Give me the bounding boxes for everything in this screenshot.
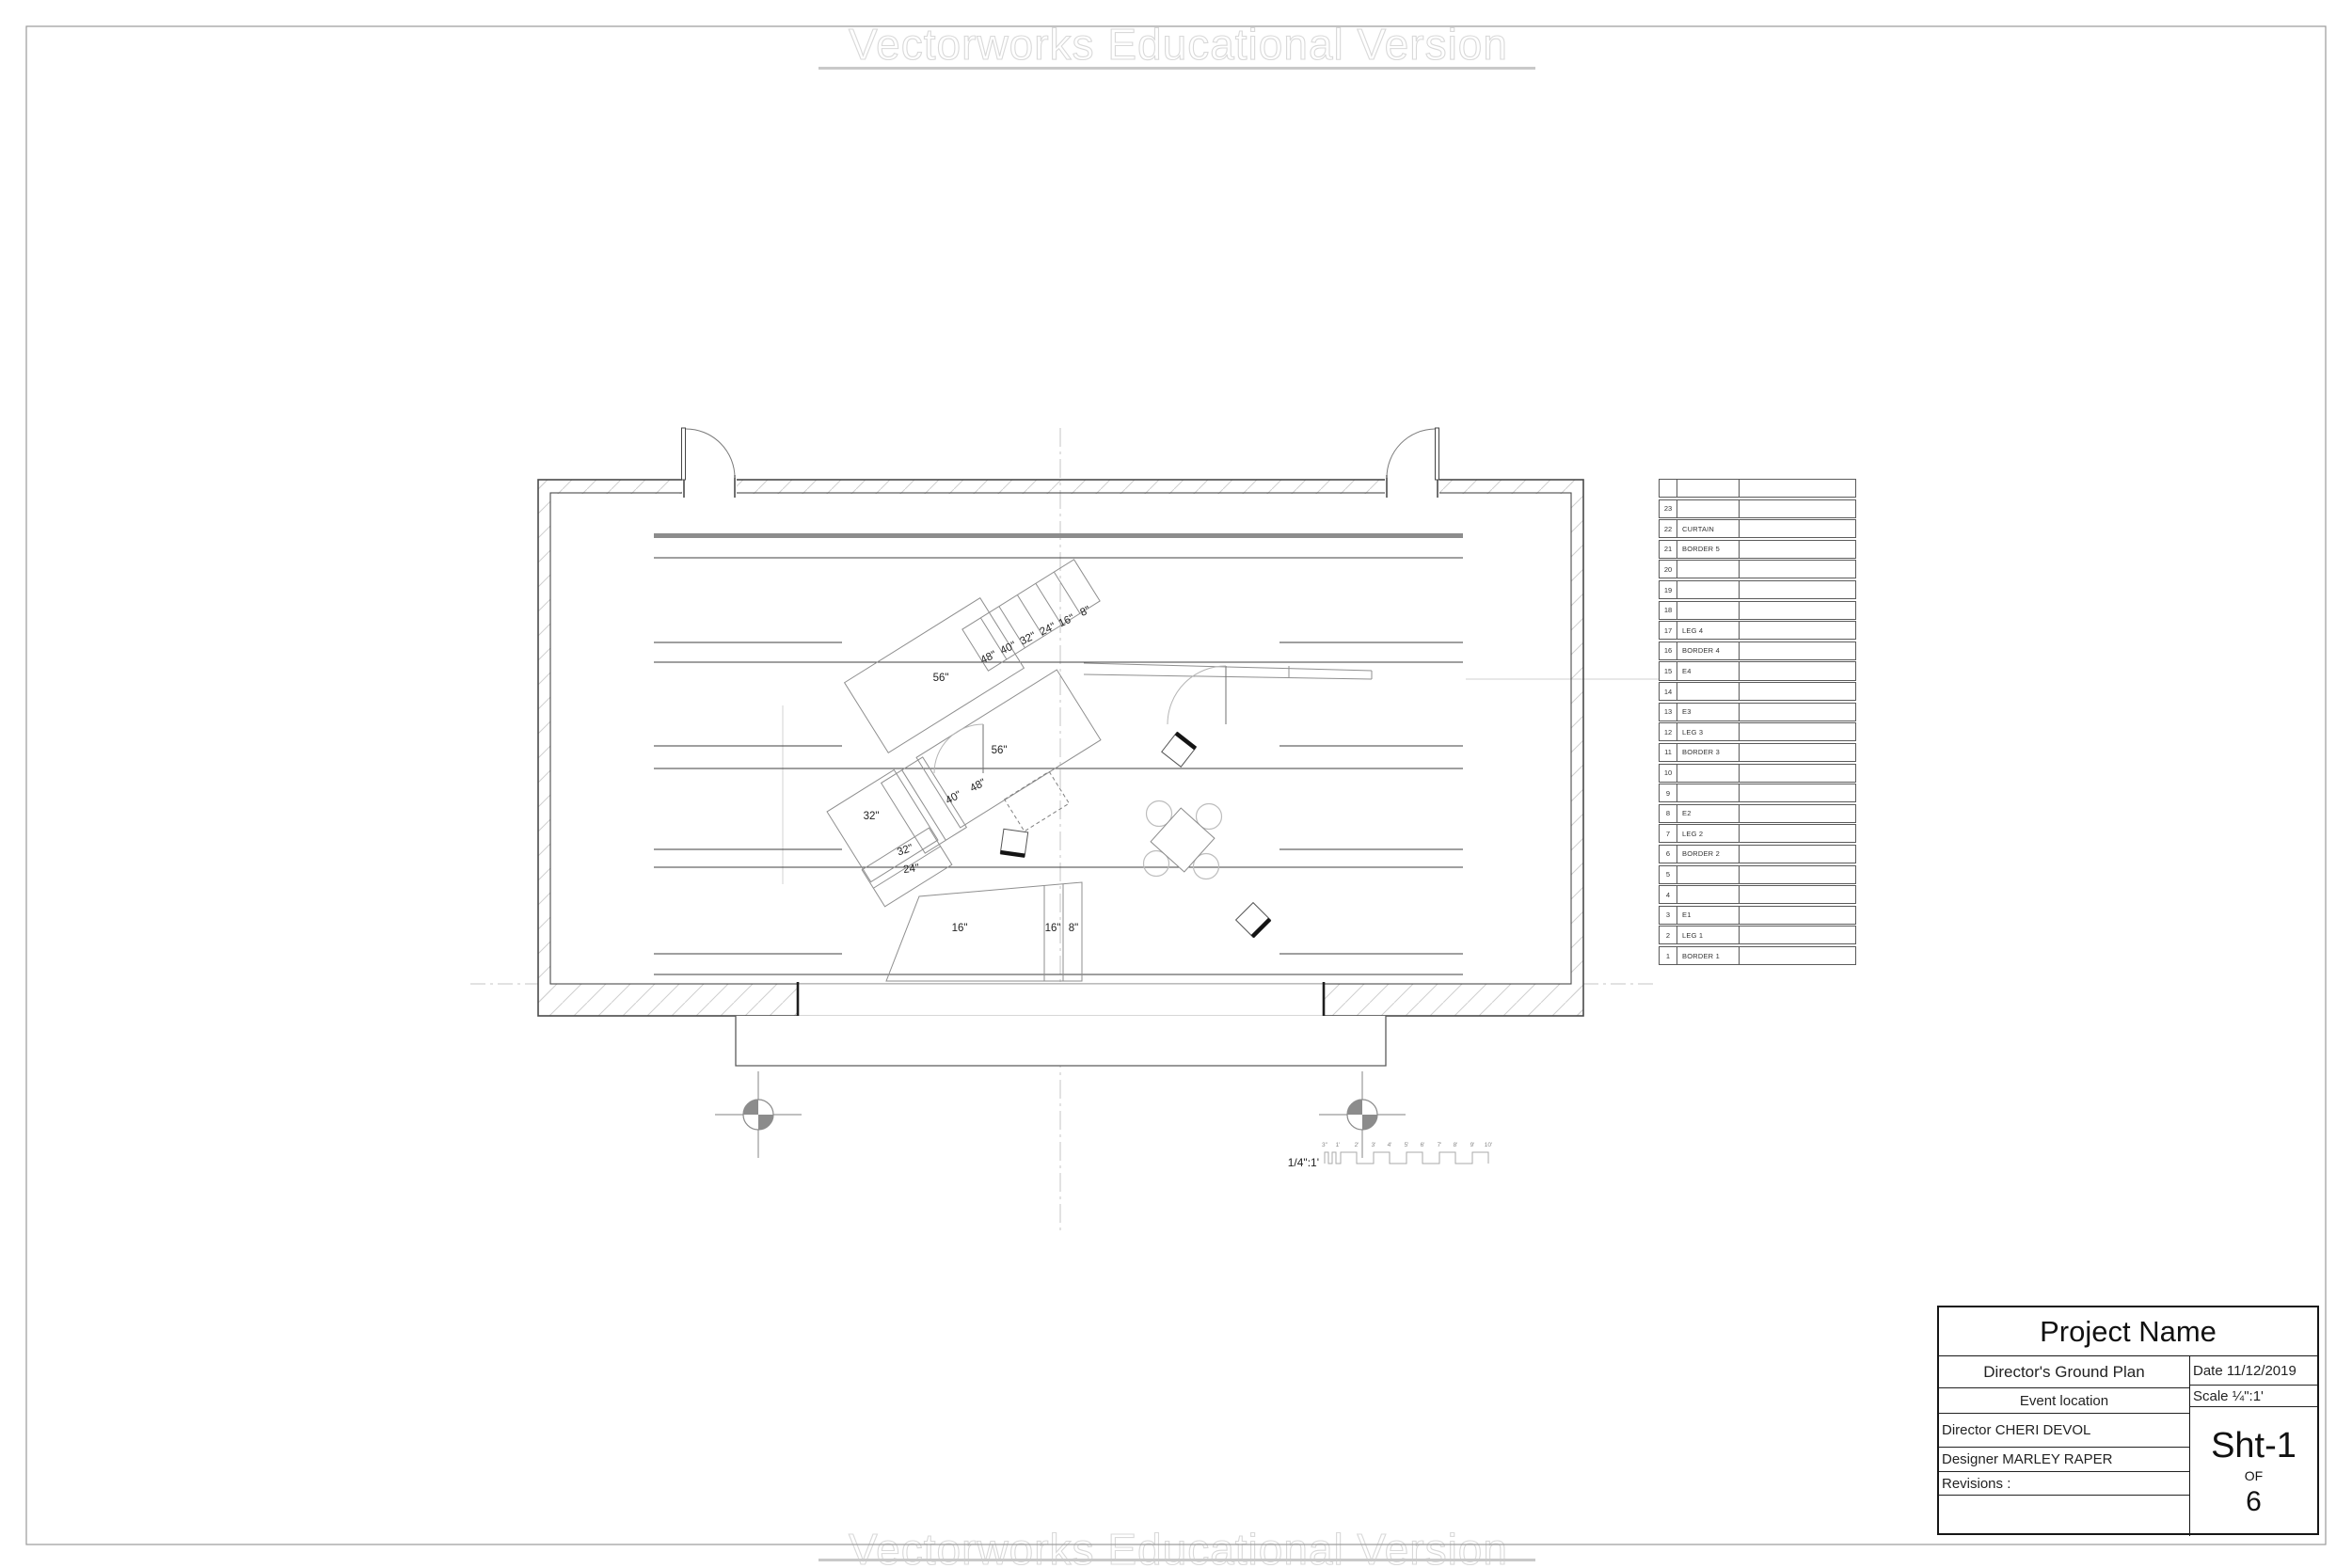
lineset-label — [1677, 765, 1740, 782]
dining-table — [1151, 808, 1215, 872]
door-left-opening — [682, 477, 737, 496]
scale-bar-tick-label: 9' — [1470, 1142, 1475, 1148]
platform-dimension-label: 32" — [864, 811, 880, 822]
lineset-row: 13E3 — [1659, 703, 1856, 721]
lineset-row: 20 — [1659, 560, 1856, 578]
scale-label: Scale — [2193, 1388, 2229, 1404]
lineset-row: 21BORDER 5 — [1659, 540, 1856, 559]
lineset-row: 11BORDER 3 — [1659, 743, 1856, 762]
scale-bar-tick-label: 3' — [1372, 1142, 1376, 1148]
date-row: Date 11/12/2019 — [2190, 1356, 2317, 1386]
wall-bottom-right-hatch — [1324, 984, 1583, 1016]
revisions-row: Revisions : — [1939, 1472, 2189, 1496]
scale-value: ¼":1' — [2233, 1388, 2264, 1404]
platform-dimension-label: 40" — [944, 789, 963, 807]
platform-dimension-label: 56" — [992, 745, 1008, 756]
lineset-number: 20 — [1660, 561, 1677, 578]
stair-run-mid — [882, 757, 967, 853]
proscenium-opening — [798, 984, 1324, 1016]
director-label: Director — [1942, 1422, 1992, 1438]
drawing-sheet: Vectorworks Educational Version Vectorwo… — [0, 0, 2352, 1568]
lineset-number: 9 — [1660, 784, 1677, 801]
lineset-note — [1740, 723, 1855, 740]
lineset-note — [1740, 602, 1855, 619]
scale-bar-tick-label: 5' — [1405, 1142, 1409, 1148]
prop-table-dashed — [1005, 771, 1070, 832]
lineset-row: 5 — [1659, 865, 1856, 884]
lineset-number: 22 — [1660, 520, 1677, 537]
scale-bar-tick-label: 1' — [1336, 1142, 1341, 1148]
lineset-label — [1677, 866, 1740, 883]
scale-bar-tick-label: 2' — [1355, 1142, 1359, 1148]
lineset-number: 17 — [1660, 622, 1677, 639]
title-block: Project Name Director's Ground Plan Even… — [1937, 1306, 2319, 1535]
platform-56b — [916, 670, 1101, 828]
door-left-swing-arc — [686, 429, 735, 478]
lineset-row: 9 — [1659, 784, 1856, 802]
lineset-number: 15 — [1660, 662, 1677, 679]
project-name: Project Name — [1939, 1307, 2317, 1356]
lineset-row: 6BORDER 2 — [1659, 845, 1856, 863]
scale-bar-tick-label: 7' — [1438, 1142, 1442, 1148]
lineset-number: 16 — [1660, 642, 1677, 659]
lineset-note — [1740, 683, 1855, 700]
lineset-number: 8 — [1660, 805, 1677, 822]
wall-right-hatch — [1571, 480, 1583, 1016]
lineset-row: 15E4 — [1659, 661, 1856, 680]
chair — [1000, 829, 1027, 856]
lineset-label: BORDER 3 — [1677, 744, 1740, 761]
lineset-note — [1740, 642, 1855, 659]
lineset-number: 7 — [1660, 825, 1677, 842]
platform-unit — [827, 560, 1372, 981]
lineset-row: 22CURTAIN — [1659, 519, 1856, 538]
lineset-number: 1 — [1660, 947, 1677, 964]
platform-32 — [827, 769, 938, 881]
platform-dimension-label: 24" — [1039, 621, 1057, 638]
designer-label: Designer — [1942, 1451, 1998, 1467]
facia-top-line — [1084, 663, 1372, 671]
lineset-note — [1740, 541, 1855, 558]
designer-row: Designer MARLEY RAPER — [1939, 1448, 2189, 1472]
lineset-row: 4 — [1659, 885, 1856, 904]
scale-bar-tick-label: 4' — [1388, 1142, 1392, 1148]
lineset-note — [1740, 561, 1855, 578]
lineset-note — [1740, 480, 1855, 497]
lineset-label: LEG 1 — [1677, 927, 1740, 943]
lineset-row: 23 — [1659, 499, 1856, 518]
scale-bar-label: 1/4":1' — [1288, 1156, 1319, 1169]
lineset-label: LEG 2 — [1677, 825, 1740, 842]
lineset-label — [1677, 581, 1740, 598]
lineset-label: E4 — [1677, 662, 1740, 679]
scale-bar-tick-label: 8' — [1454, 1142, 1458, 1148]
lineset-label: BORDER 4 — [1677, 642, 1740, 659]
lineset-row: 10 — [1659, 764, 1856, 783]
lineset-row: 14 — [1659, 682, 1856, 701]
scale-bar-ticks: 3"1'2'3'4'5'6'7'8'9'10' — [1322, 1142, 1492, 1148]
facia-bottom-line — [1084, 674, 1372, 679]
lineset-label: BORDER 2 — [1677, 846, 1740, 863]
sheet-number: Sht-1 — [2211, 1428, 2296, 1464]
chair — [1236, 903, 1271, 938]
scale-bar-tick-label: 3" — [1322, 1142, 1328, 1148]
lineset-number: 11 — [1660, 744, 1677, 761]
lineset-note — [1740, 622, 1855, 639]
door-right-opening — [1385, 477, 1439, 496]
scale-bar-tick-label: 6' — [1421, 1142, 1425, 1148]
sheet-of-label: OF — [2245, 1469, 2263, 1482]
lineset-number: 3 — [1660, 907, 1677, 924]
door-right-swing-arc — [1387, 429, 1435, 478]
lineset-number: 10 — [1660, 765, 1677, 782]
revisions-empty-row — [1939, 1496, 2189, 1536]
sheet-total: 6 — [2246, 1488, 2262, 1516]
lineset-note — [1740, 825, 1855, 842]
lineset-number — [1660, 480, 1677, 497]
lineset-label — [1677, 784, 1740, 801]
lineset-number: 14 — [1660, 683, 1677, 700]
lineset-number: 2 — [1660, 927, 1677, 943]
lineset-row: 16BORDER 4 — [1659, 641, 1856, 660]
lineset-row: 1BORDER 1 — [1659, 946, 1856, 965]
platform-dimension-label: 8" — [1069, 923, 1078, 934]
scale-bar: 1/4":1' 3"1'2'3'4'5'6'7'8'9'10' — [1288, 1142, 1492, 1169]
datum-symbol-left — [715, 1071, 802, 1158]
lineset-note — [1740, 947, 1855, 964]
lineset-row: 17LEG 4 — [1659, 621, 1856, 640]
sheet-number-cell: Sht-1 OF 6 — [2190, 1407, 2317, 1536]
lineset-label: BORDER 1 — [1677, 947, 1740, 964]
platform-dimension-label: 32" — [1019, 630, 1038, 647]
masking-lines — [654, 533, 1463, 974]
lineset-note — [1740, 704, 1855, 721]
lineset-note — [1740, 927, 1855, 943]
platform-dimension-label: 48" — [979, 649, 998, 666]
platform-dimension-label: 48" — [968, 777, 988, 795]
lineset-note — [1740, 784, 1855, 801]
lineset-label: LEG 4 — [1677, 622, 1740, 639]
platform-dimension-label: 24" — [902, 863, 919, 876]
scale-bar-tick-label: 10' — [1485, 1142, 1492, 1148]
lineset-label: E1 — [1677, 907, 1740, 924]
lineset-number: 4 — [1660, 886, 1677, 903]
lineset-row: 3E1 — [1659, 906, 1856, 925]
drawing-title: Director's Ground Plan — [1939, 1356, 2189, 1388]
lineset-number: 12 — [1660, 723, 1677, 740]
platform-dimension-label: 56" — [933, 673, 949, 684]
date-label: Date — [2193, 1363, 2223, 1379]
door-left-leaf — [682, 428, 686, 480]
lineset-row: 2LEG 1 — [1659, 926, 1856, 944]
lineset-label: E2 — [1677, 805, 1740, 822]
apron-outline — [736, 1016, 1386, 1066]
lineset-number: 18 — [1660, 602, 1677, 619]
lineset-note — [1740, 744, 1855, 761]
lineset-label — [1677, 500, 1740, 517]
lineset-label: CURTAIN — [1677, 520, 1740, 537]
lineset-label — [1677, 683, 1740, 700]
lineset-note — [1740, 846, 1855, 863]
date-value: 11/12/2019 — [2227, 1363, 2296, 1379]
lineset-number: 5 — [1660, 866, 1677, 883]
lineset-number: 13 — [1660, 704, 1677, 721]
lineset-number: 21 — [1660, 541, 1677, 558]
lineset-label — [1677, 480, 1740, 497]
lineset-note — [1740, 907, 1855, 924]
datum-symbol-right — [1319, 1071, 1406, 1158]
lineset-row: 7LEG 2 — [1659, 824, 1856, 843]
lineset-note — [1740, 581, 1855, 598]
lineset-note — [1740, 805, 1855, 822]
platform-dimension-label: 16" — [1045, 923, 1061, 934]
designer-name: MARLEY RAPER — [2002, 1451, 2112, 1467]
director-row: Director CHERI DEVOL — [1939, 1414, 2189, 1448]
lineset-note — [1740, 886, 1855, 903]
lineset-note — [1740, 765, 1855, 782]
lineset-label: E3 — [1677, 704, 1740, 721]
scale-bar-graphic — [1325, 1152, 1488, 1164]
lineset-row: 19 — [1659, 580, 1856, 599]
lineset-note — [1740, 500, 1855, 517]
director-name: CHERI DEVOL — [1995, 1422, 2091, 1438]
lineset-note — [1740, 662, 1855, 679]
platform-door-arc-right — [1168, 666, 1226, 724]
platform-dimension-label: 16" — [952, 923, 968, 934]
lineset-note — [1740, 866, 1855, 883]
loose-chairs — [1000, 733, 1270, 938]
lineset-label — [1677, 561, 1740, 578]
lineset-row: 18 — [1659, 601, 1856, 620]
lineset-label — [1677, 886, 1740, 903]
lineset-number: 23 — [1660, 500, 1677, 517]
lineset-note — [1740, 520, 1855, 537]
lineset-number: 6 — [1660, 846, 1677, 863]
wall-bottom-left-hatch — [538, 984, 798, 1016]
event-location: Event location — [1939, 1388, 2189, 1414]
scale-row: Scale ¼":1' — [2190, 1386, 2317, 1407]
lineset-label: LEG 3 — [1677, 723, 1740, 740]
curtain-bar — [654, 533, 1463, 538]
lineset-row: 8E2 — [1659, 804, 1856, 823]
lineset-number: 19 — [1660, 581, 1677, 598]
door-right-leaf — [1436, 428, 1439, 480]
lineset-schedule-table: 2322CURTAIN21BORDER 520191817LEG 416BORD… — [1659, 479, 1856, 965]
lineset-row: 12LEG 3 — [1659, 722, 1856, 741]
lineset-label — [1677, 602, 1740, 619]
wall-left-hatch — [538, 480, 550, 1016]
chair — [1162, 733, 1196, 767]
lineset-label: BORDER 5 — [1677, 541, 1740, 558]
lineset-header-row — [1659, 479, 1856, 498]
